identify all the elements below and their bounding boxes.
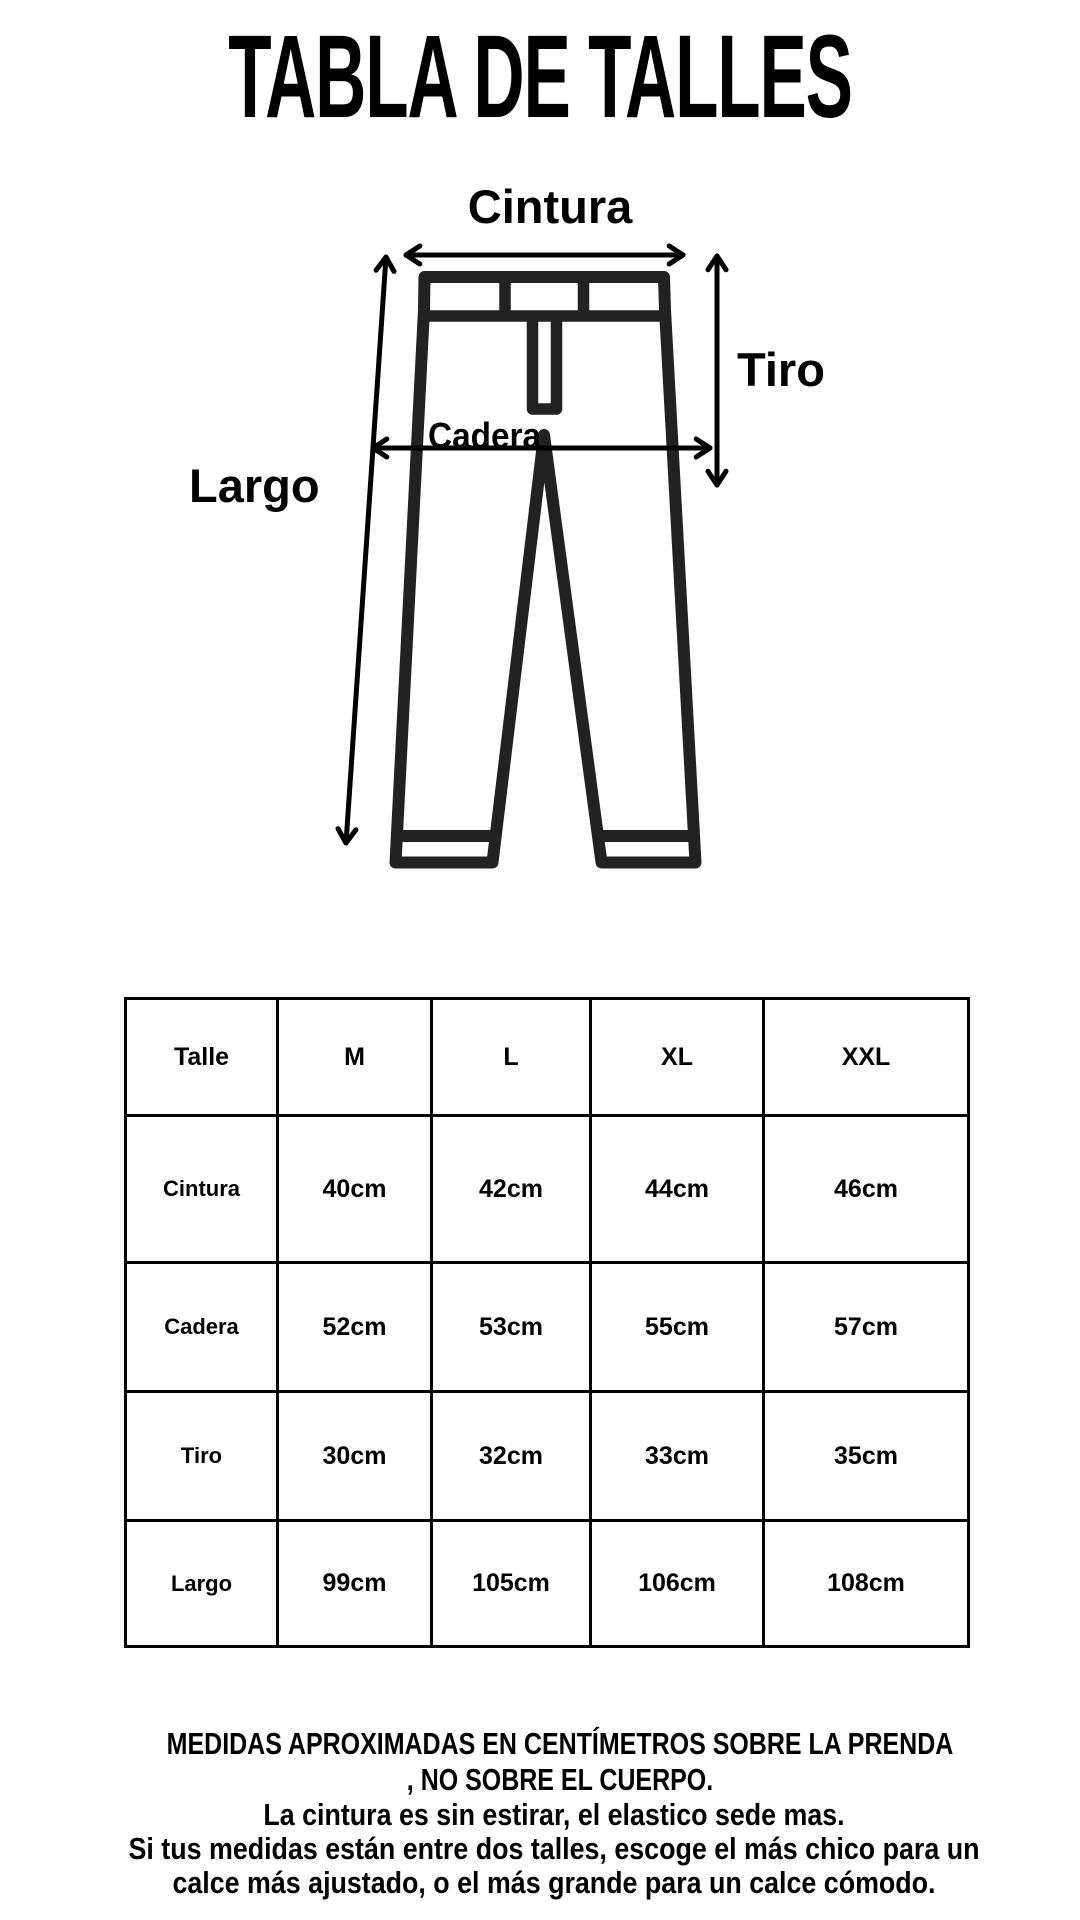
svg-text:Cadera: Cadera (428, 415, 542, 456)
svg-text:Tiro: Tiro (737, 343, 825, 396)
svg-text:Cintura: Cintura (468, 180, 633, 233)
svg-text:Largo: Largo (189, 459, 320, 512)
